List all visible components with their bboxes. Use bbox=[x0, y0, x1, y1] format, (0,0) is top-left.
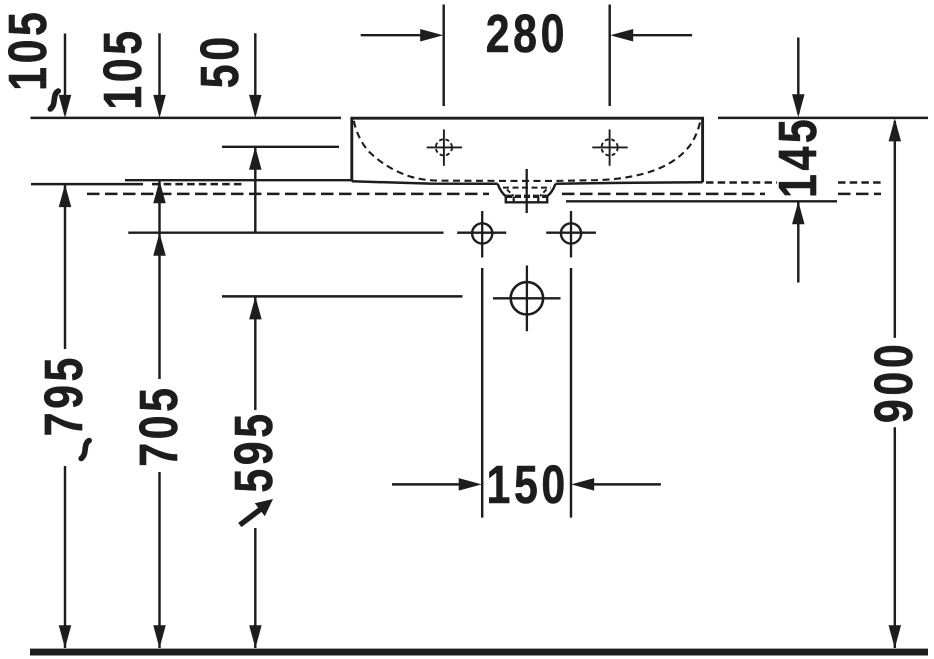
svg-text:900: 900 bbox=[864, 341, 924, 423]
svg-text:145: 145 bbox=[768, 116, 828, 198]
svg-text:50: 50 bbox=[190, 33, 250, 88]
svg-text:795: 795 bbox=[34, 354, 94, 436]
svg-text:105: 105 bbox=[0, 9, 58, 91]
svg-text:150: 150 bbox=[487, 455, 569, 515]
svg-text:105: 105 bbox=[93, 27, 153, 109]
svg-text:705: 705 bbox=[129, 384, 189, 466]
svg-text:280: 280 bbox=[486, 4, 568, 64]
svg-text:595: 595 bbox=[224, 410, 284, 492]
